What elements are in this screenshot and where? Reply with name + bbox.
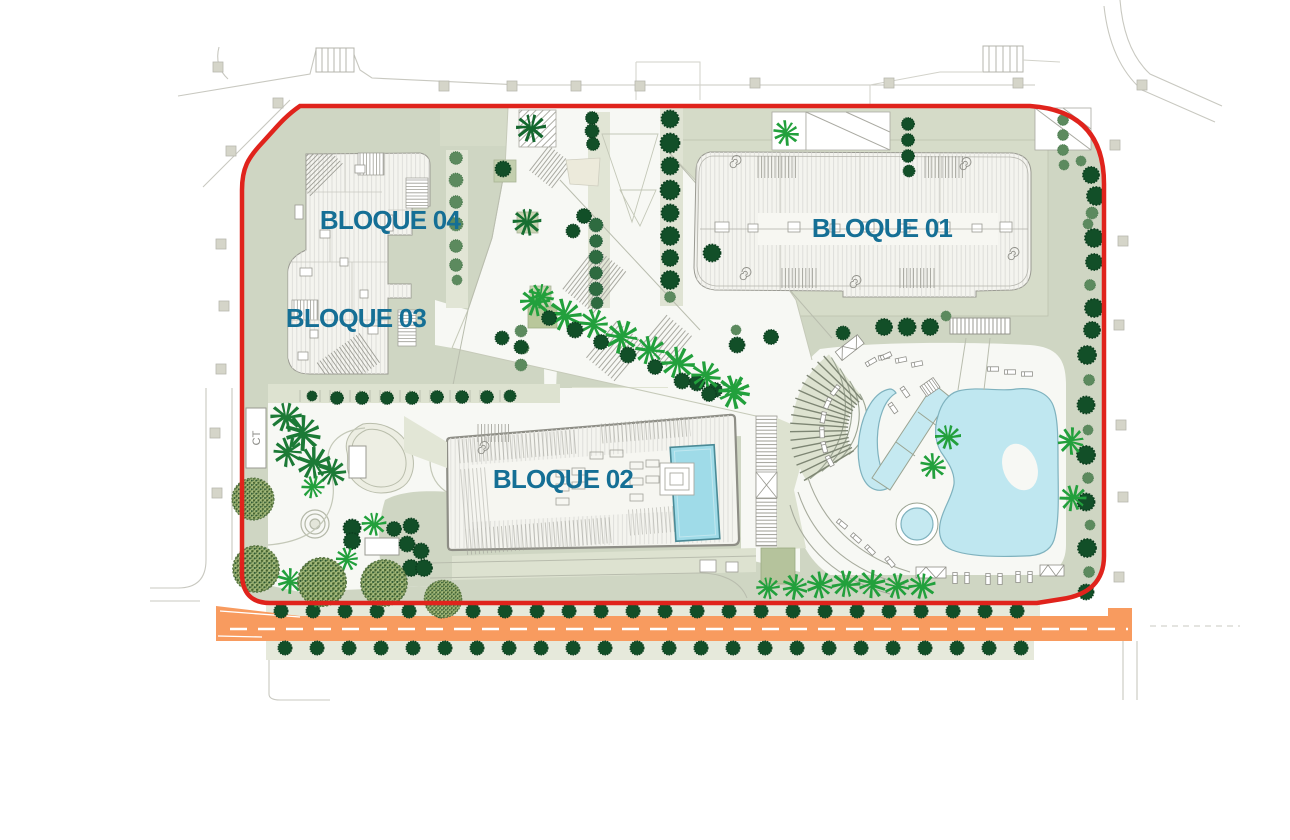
svg-text:BLOQUE 03: BLOQUE 03: [286, 303, 427, 333]
svg-text:BLOQUE 02: BLOQUE 02: [493, 464, 634, 494]
svg-text:BLOQUE 01: BLOQUE 01: [812, 213, 953, 243]
svg-text:BLOQUE 04: BLOQUE 04: [320, 205, 462, 235]
svg-text:CT: CT: [251, 430, 263, 445]
